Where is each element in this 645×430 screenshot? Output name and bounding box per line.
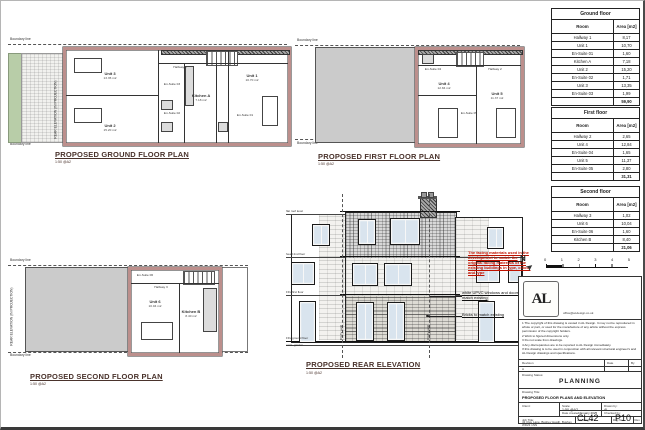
- chimney-cap: [418, 196, 437, 199]
- table-total-row: 59,90: [552, 98, 640, 106]
- boundary-line-top: [295, 45, 520, 46]
- north-arrow-icon: ➤: [523, 261, 536, 274]
- scalebar-numbers: 012345: [544, 257, 630, 262]
- first-ground-divider: [340, 294, 460, 295]
- bed: [496, 108, 516, 138]
- first-plan-title: PROPOSED FIRST FLOOR PLAN: [318, 152, 440, 161]
- garden-line: [286, 345, 526, 346]
- rear-elevation-projection-label: REAR ELEVATION (IN PROJECTION): [54, 80, 58, 138]
- party-wall-line-right: [429, 194, 430, 358]
- table-row: Unit 313,35: [552, 82, 640, 90]
- bed: [74, 58, 102, 73]
- room-label-ensuite3: En-Suite 03: [160, 83, 184, 87]
- second-plan-title: PROPOSED SECOND FLOOR PLAN: [30, 372, 163, 381]
- rev-label: Rev: [635, 418, 640, 422]
- window: [390, 218, 420, 245]
- drawing-status: PLANNING: [519, 378, 641, 385]
- table-row: En-Suite 061,60: [552, 228, 640, 236]
- flat-roof: [25, 267, 130, 352]
- room-label-ensuite1: En-Suite 01: [230, 114, 260, 118]
- table-title: Second floor: [552, 187, 640, 198]
- room-label-hallway1: Hallway 1: [160, 66, 200, 70]
- chimney: [420, 198, 437, 218]
- chimney-pot: [428, 192, 434, 198]
- table-row: Kitchen A7,18: [552, 58, 640, 66]
- door-window: [356, 302, 374, 341]
- table-row: En-Suite 011,60: [552, 50, 640, 58]
- drawing-title: PROPOSED FLOOR PLANS AND ELEVATION: [522, 395, 605, 400]
- leader-dot: [426, 315, 429, 318]
- table-row: En-Suite 041,65: [552, 149, 640, 157]
- elevation-title: PROPOSED REAR ELEVATION: [306, 360, 420, 369]
- status-label: Drawing Status:: [522, 373, 543, 377]
- level-label: flat roof level: [286, 209, 303, 213]
- first-plan-scale: 1:50 @A2: [318, 162, 334, 166]
- drg-no-value: P10: [615, 413, 631, 423]
- table-row: Unit 412,84: [552, 141, 640, 149]
- party-wall-label-left: Party wall: [340, 325, 344, 340]
- room-label-hallway3: Hallway 3: [145, 286, 177, 290]
- table-row: Kitchen B8,40: [552, 236, 640, 244]
- boundary-line-top: [8, 44, 287, 45]
- boundary-label-bottom: Boundary line: [10, 143, 31, 147]
- scalebar-filled-segment: [546, 265, 562, 268]
- room-label-hallway2: Hallway 2: [478, 68, 512, 72]
- room-label-ensuite2: En-Suite 02: [160, 112, 184, 116]
- room-label-kitchenB: Kitchen B 8.40 m2: [179, 310, 203, 319]
- level-label: FFL ground floor: [286, 336, 308, 340]
- al-design-logo: AL: [523, 281, 559, 317]
- boundary-label-top: Boundary line: [297, 39, 318, 43]
- bed: [438, 108, 458, 138]
- ground-plan-scale: 1:50 @A2: [55, 160, 71, 164]
- title-block: AL office@al-design.co.uk 1 The copyrigh…: [518, 276, 642, 424]
- table-row: Hallway 31,02: [552, 212, 640, 220]
- room-label-unit2: Unit 2 15.20 m2: [88, 124, 132, 133]
- room-label-unit5: Unit 5 11.37 m2: [478, 92, 516, 101]
- table-row: Hallway 18,17: [552, 34, 640, 42]
- bricks-note: Bricks to match existing: [462, 313, 504, 318]
- bed: [262, 96, 278, 126]
- room-label-ensuite4: En-Suite 04: [420, 68, 446, 72]
- rear-yard-hatch: [21, 53, 65, 143]
- boundary-label-bottom: Boundary line: [10, 354, 31, 358]
- leader-line: [430, 296, 462, 297]
- second-first-divider: [340, 256, 460, 257]
- bed: [74, 108, 102, 123]
- chimney-pot: [421, 192, 427, 198]
- boundary-label-top: Boundary line: [10, 259, 31, 263]
- copyright-notes: 1 The copyright of this drawing is veste…: [522, 321, 638, 356]
- door-window: [299, 301, 316, 343]
- second-floor-building: En-Suite 06 Hallway 3 Unit 6 10.04 m2 Ki…: [128, 267, 222, 356]
- window: [487, 227, 504, 249]
- ground-plan-title: PROPOSED GROUND FLOOR PLAN: [55, 150, 189, 159]
- neighbour-right: [455, 217, 523, 343]
- door-window: [387, 302, 405, 341]
- window: [312, 224, 330, 246]
- window: [476, 261, 500, 283]
- drawing-title-label: Drawing Title:: [522, 390, 540, 394]
- second-plan-scale: 1:50 @A2: [30, 382, 46, 386]
- ground-line: [286, 341, 526, 342]
- room-label-ensuite5: En-Suite 05: [458, 112, 480, 116]
- revision-col-header: Revision: [522, 361, 534, 365]
- bed: [141, 322, 173, 340]
- ground-floor-building: Unit 3 13.35 m2 Unit 2 15.20 m2 Kitchen …: [63, 47, 291, 146]
- table-title: First floor: [552, 108, 640, 119]
- table-title: Ground floor: [552, 9, 640, 20]
- window: [291, 262, 315, 285]
- window: [358, 219, 376, 245]
- bathroom-fixture: [161, 100, 173, 110]
- room-label-unit4: Unit 4 12.84 m2: [424, 82, 464, 91]
- room-label-unit3: Unit 3 13.35 m2: [88, 72, 132, 81]
- boundary-line-top: [8, 265, 248, 266]
- leader-line: [428, 316, 462, 317]
- revision-col-header: Date: [607, 361, 613, 365]
- table-total-row: 21,06: [552, 244, 640, 252]
- table-row: En-Suite 052,80: [552, 165, 640, 173]
- room-label-unit1: Unit 1 10.70 m2: [230, 74, 274, 83]
- table-row: Unit 610,04: [552, 220, 640, 228]
- room-label-kitchenA: Kitchen A 7.18 m2: [187, 94, 215, 103]
- ground-floor-table: Ground floor RoomArea [m2] Hallway 18,17…: [551, 8, 640, 106]
- table-row: En-Suite 021,71: [552, 74, 640, 82]
- party-wall-label-right: Party wall: [427, 325, 431, 340]
- table-row: En-Suite 031,99: [552, 90, 640, 98]
- table-row: Unit 215,20: [552, 66, 640, 74]
- client-label: Client:: [522, 404, 531, 408]
- bathroom-fixture: [422, 54, 434, 64]
- window: [352, 263, 378, 286]
- neighbour-left: [291, 214, 347, 343]
- job-title-value: 43 Clay Lane, Bushey Heath, Bushey WD23 …: [522, 421, 572, 428]
- party-wall-line-left: [342, 194, 343, 358]
- main-building: [345, 212, 457, 343]
- revision-col-header: By: [631, 361, 635, 365]
- first-floor-plan: Boundary line Boundary line En-Suite 04 …: [290, 0, 525, 175]
- dwg-no-value: CL42: [577, 413, 599, 423]
- table-row: Unit 110,70: [552, 42, 640, 50]
- table-row: Unit 511,37: [552, 157, 640, 165]
- second-floor-plan: Boundary line Boundary line REAR ELEVATI…: [0, 250, 260, 395]
- room-label-unit6: Unit 6 10.04 m2: [135, 300, 175, 309]
- door-window: [478, 301, 495, 343]
- second-floor-table: Second floor RoomArea [m2] Hallway 31,02…: [551, 186, 640, 252]
- level-label: head 2nd floor: [286, 252, 305, 256]
- boundary-label-top: Boundary line: [10, 38, 31, 42]
- elevation-scale: 1:50 @A2: [306, 371, 322, 375]
- window: [384, 263, 412, 286]
- rear-elevation-projection-label: REAR ELEVATION (IN PROJECTION): [10, 287, 14, 345]
- table-total-row: 31,31: [552, 173, 640, 181]
- level-label: exist. garden: [286, 343, 303, 347]
- drawing-sheet: Boundary line Boundary line REAR ELEVATI…: [0, 0, 645, 430]
- room-label-ensuite6: En-Suite 06: [133, 274, 157, 278]
- ground-floor-plan: Boundary line Boundary line REAR ELEVATI…: [0, 0, 300, 170]
- flat-roof: [315, 47, 417, 143]
- table-row: Hallway 22,65: [552, 133, 640, 141]
- email: office@al-design.co.uk: [563, 311, 593, 315]
- bathroom-fixture: [161, 122, 173, 132]
- north-label: N: [520, 254, 526, 263]
- roof-line: [340, 211, 460, 212]
- bathroom-fixture: [218, 122, 228, 132]
- first-floor-building: En-Suite 04 Hallway 2 Unit 4 12.84 m2 Un…: [415, 47, 524, 147]
- kitchen-counter: [203, 288, 217, 332]
- level-label: FFL first floor: [286, 290, 304, 294]
- first-floor-table: First floor RoomArea [m2] Hallway 22,65 …: [551, 107, 640, 181]
